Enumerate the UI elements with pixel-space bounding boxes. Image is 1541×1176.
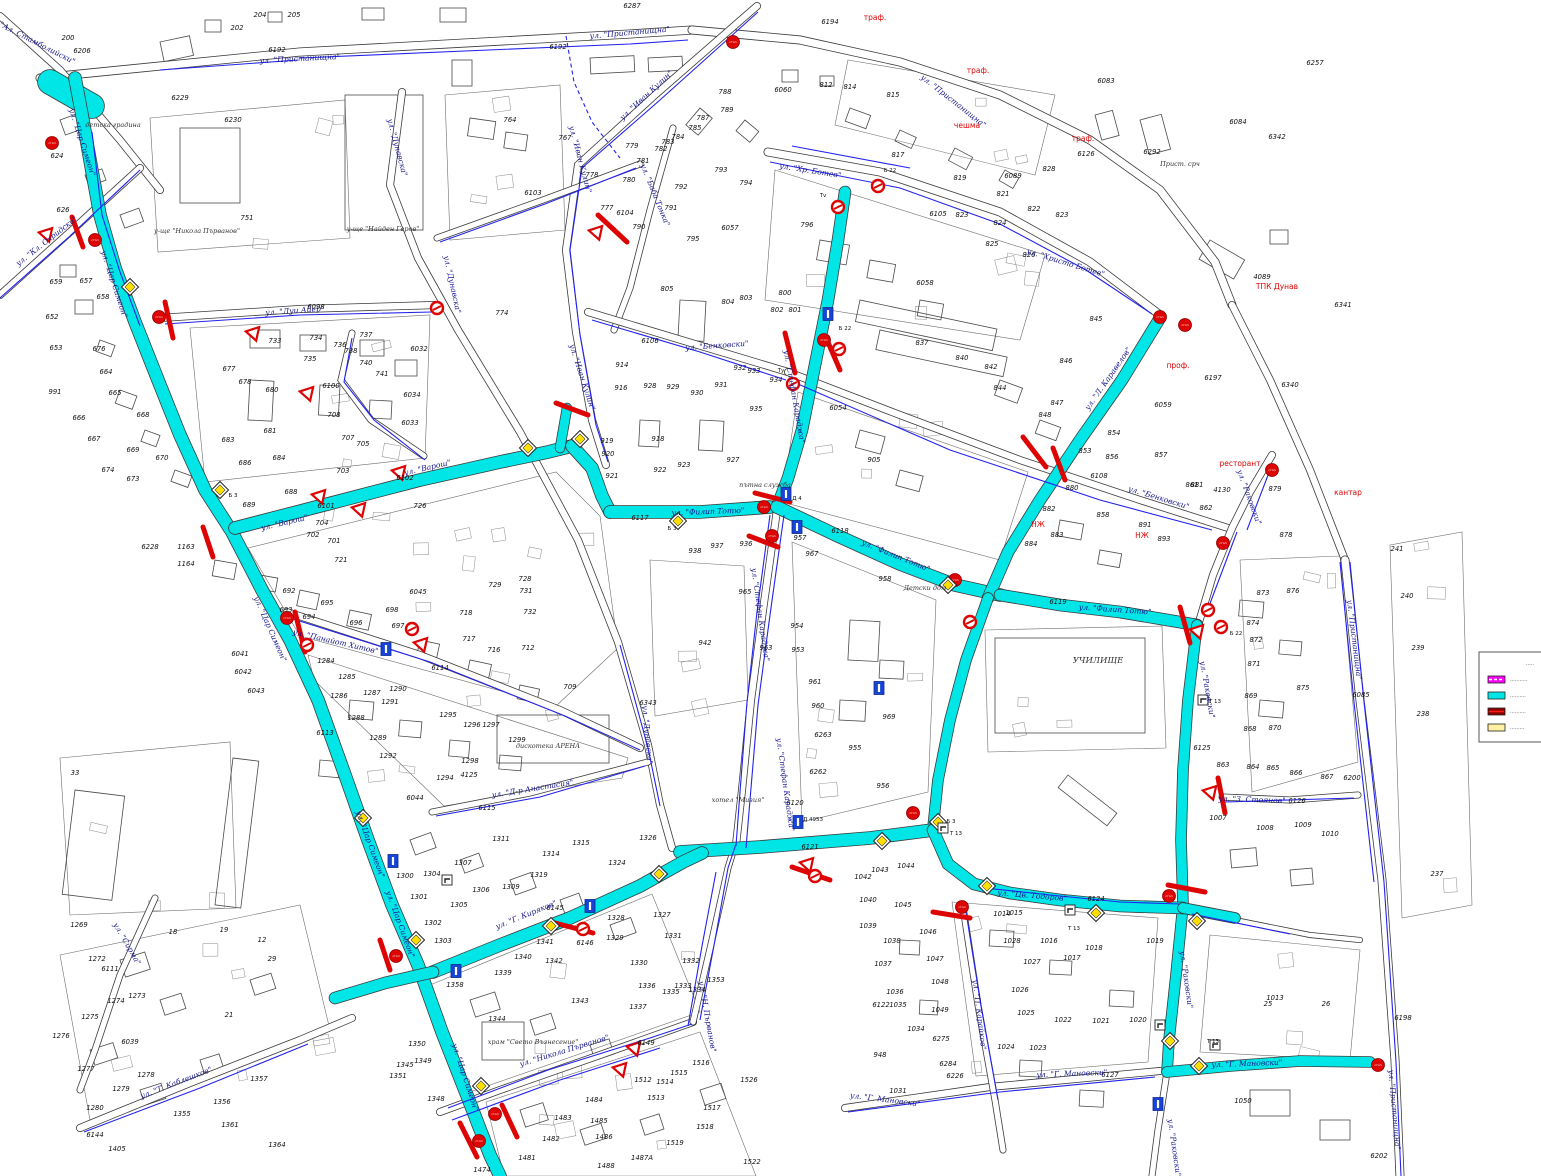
parcel-number: 6104 (616, 209, 633, 217)
sign-code-label: Тv (819, 193, 827, 199)
building-outline (141, 430, 160, 447)
parcel-number: 891 (1139, 521, 1152, 529)
parcel-number: 931 (715, 381, 728, 389)
parcel-number: 1342 (545, 957, 562, 965)
parcel-number: 817 (892, 151, 906, 159)
parcel-number: 738 (345, 347, 359, 355)
parcel-number: 6043 (247, 687, 264, 695)
parcel-number: 1038 (883, 937, 901, 945)
parcel-number: 6103 (524, 189, 541, 197)
parcel-number: 795 (687, 235, 700, 243)
parcel-number: 6114 (431, 664, 448, 672)
parcel-number: 6057 (721, 224, 739, 232)
building-outline (867, 260, 896, 282)
parcel-number: 803 (740, 294, 753, 302)
parcel-number: 6085 (1352, 691, 1369, 699)
parcel-number: 882 (1043, 505, 1056, 513)
building-outline (1109, 990, 1134, 1007)
legend: ········································… (1479, 652, 1541, 742)
parcel-number: 1035 (889, 1001, 906, 1009)
legend-header: ····· (1526, 662, 1534, 668)
building-outline (62, 790, 124, 900)
parcel-clutter (416, 602, 431, 611)
info-sign-glyph (785, 490, 787, 498)
parcel-number: 853 (1079, 447, 1092, 455)
parcel-number: 701 (328, 537, 341, 545)
parcel-number: 1303 (434, 937, 451, 945)
parcel-number: 240 (1401, 592, 1414, 600)
parcel-number: 1336 (638, 982, 656, 990)
parcel-number: 704 (316, 519, 329, 527)
parcel-number: 1361 (221, 1121, 238, 1129)
parcel-number: 657 (80, 277, 94, 285)
parcel-number: 1331 (664, 932, 681, 940)
building-outline (700, 1083, 726, 1105)
parcel-number: 1512 (634, 1076, 651, 1084)
parcel-number: 934 (770, 376, 783, 384)
parcel-number: 689 (243, 501, 256, 509)
parcel-number: 1047 (926, 955, 944, 963)
building-outline (75, 300, 93, 314)
stop-sign-text: стоп (1165, 894, 1172, 898)
info-sign-glyph (827, 310, 829, 318)
parcel-number: 1008 (1256, 824, 1274, 832)
parcel-number: 200 (62, 34, 75, 42)
parcel-number: 686 (239, 459, 253, 467)
parcel-number: 670 (156, 454, 169, 462)
building-outline (467, 118, 495, 139)
parcel-clutter (313, 1037, 335, 1055)
parcel-number: 923 (678, 461, 691, 469)
parcel-number: 1020 (1129, 1016, 1146, 1024)
parcel-clutter (1024, 271, 1040, 286)
parcel-number: 6106 (641, 337, 659, 345)
sign-code-label: Б 22 (884, 168, 897, 174)
parcel-clutter (818, 708, 835, 723)
parcel-number: 6083 (1097, 77, 1114, 85)
parcel-clutter (467, 695, 481, 707)
yield-sign-icon (589, 226, 606, 242)
parcel-number: 854 (1108, 429, 1121, 437)
parcel-number: 930 (691, 389, 704, 397)
parcel-clutter (111, 1055, 133, 1071)
parcel-number: 6033 (401, 419, 418, 427)
parcel-number: 880 (1066, 484, 1079, 492)
sign-code-label: Б 3 (228, 493, 238, 499)
building-outline (1279, 640, 1302, 656)
parcel-clutter (1443, 878, 1457, 893)
parcel-number: 676 (93, 345, 107, 353)
map-svg[interactable]: стопстопстопстопстопстопстопстопстопстоп… (0, 0, 1541, 1176)
parcel-number: 969 (883, 713, 896, 721)
parcel-number: 942 (699, 639, 712, 647)
stop-sign-text: стоп (958, 905, 965, 909)
building-outline (736, 120, 759, 142)
parcel-number: 6229 (171, 94, 188, 102)
area-label: хотел "Мизия" (712, 796, 765, 804)
parcel-number: 1016 (1040, 937, 1058, 945)
parcel-number: 1311 (492, 835, 509, 843)
parcel-number: 905 (868, 456, 881, 464)
parcel-number: 6146 (576, 939, 594, 947)
yield-sign-icon (352, 503, 369, 519)
parcel-number: 626 (57, 206, 71, 214)
parcel-number: 1021 (1092, 1017, 1109, 1025)
red-poi-label: траф. (967, 66, 990, 75)
traffic-signs-layer: стопстопстопстопстопстопстопстопстопстоп… (39, 36, 1385, 1158)
parcel-number: 1017 (1063, 954, 1081, 962)
parcel-number: 1010 (1321, 830, 1338, 838)
parcel-number: 873 (1257, 589, 1270, 597)
parcel-number: 1345 (396, 1061, 413, 1069)
parcel-number: 204 (254, 11, 267, 19)
area-label: Детски дом (903, 584, 947, 592)
parcel-number: 840 (956, 354, 969, 362)
parcel-clutter (332, 393, 350, 403)
parcel-clutter (971, 1061, 982, 1073)
stop-sign-text: стоп (475, 1139, 482, 1143)
parcel-number: 883 (1051, 531, 1064, 539)
parcel-clutter (491, 528, 506, 543)
parcel-number: 822 (1028, 205, 1041, 213)
parcel-number: 6149 (637, 1039, 654, 1047)
parcel-number: 1040 (859, 896, 876, 904)
parcel-number: 932 (734, 364, 747, 372)
parcel-number: 785 (689, 124, 702, 132)
parcel-number: 25 (1264, 1000, 1273, 1008)
block-outline (1390, 532, 1472, 918)
parcel-number: 6042 (234, 668, 251, 676)
parcel-number: 241 (1391, 545, 1404, 553)
building-outline (160, 993, 186, 1015)
parcel-number: 868 (1244, 725, 1258, 733)
parcel-number: 866 (1290, 769, 1304, 777)
parcel-number: 1278 (137, 1071, 155, 1079)
building-outline (855, 430, 885, 454)
parcel-number: 918 (652, 435, 666, 443)
parcel-number: 823 (1056, 211, 1069, 219)
area-label: у-ще "Найден Геров" (346, 225, 419, 233)
parcel-clutter (1012, 722, 1026, 737)
parcel-number: 929 (667, 383, 680, 391)
parcel-number: 1039 (859, 922, 876, 930)
parcel-number: 779 (626, 142, 639, 150)
parcel-number: 6058 (916, 279, 934, 287)
building-outline (470, 992, 500, 1017)
parcel-number: 1291 (381, 698, 398, 706)
parcel-number: 6101 (317, 502, 334, 510)
red-poi-label: траф. (864, 13, 887, 22)
area-label: УЧИЛИЩЕ (1073, 656, 1124, 666)
legend-item-label: ·········· (1510, 694, 1526, 700)
parcel-number: 1305 (450, 901, 467, 909)
stop-sign-text: стоп (283, 616, 290, 620)
parcel-number: 6044 (406, 794, 423, 802)
parcel-number: 6121 (801, 843, 818, 851)
parcel-clutter (462, 556, 475, 572)
parcel-number: 718 (460, 609, 474, 617)
parcel-number: 741 (376, 370, 389, 378)
parcel-number: 780 (623, 176, 636, 184)
parcel-number: 936 (740, 540, 754, 548)
parcel-number: 12 (258, 936, 267, 944)
building-outline (1058, 775, 1117, 826)
parcel-number: 678 (239, 378, 253, 386)
cyan-street (235, 446, 572, 528)
parcel-clutter (815, 445, 833, 455)
parcel-number: 789 (721, 106, 734, 114)
parcel-number: 921 (606, 472, 619, 480)
parcel-number: 1031 (889, 1087, 906, 1095)
parcel-number: 846 (1060, 357, 1074, 365)
parcel-number: 624 (51, 152, 64, 160)
parcel-number: 1018 (1085, 944, 1103, 952)
parcel-number: 697 (392, 622, 406, 630)
parcel-clutter (399, 765, 415, 774)
parcel-number: 6100 (322, 382, 339, 390)
sign-code-label: Ту (777, 368, 785, 374)
parcel-clutter (995, 256, 1018, 276)
info-sign-glyph (589, 902, 591, 910)
parcel-number: 6105 (929, 210, 946, 218)
parcel-number: 709 (564, 683, 577, 691)
stop-sign-text: стоп (909, 811, 916, 815)
area-label: детска градина (85, 121, 141, 129)
parcel-number: 1343 (571, 997, 588, 1005)
direction-sign-icon (1155, 1020, 1165, 1030)
parcel-number: 6124 (1087, 895, 1104, 903)
parcel-number: 1329 (606, 934, 623, 942)
parcel-number: 1284 (317, 657, 334, 665)
stop-sign-text: стоп (729, 40, 736, 44)
parcel-number: 6284 (939, 1060, 956, 1068)
parcel-number: 674 (102, 466, 115, 474)
parcel-clutter (1327, 573, 1336, 588)
info-sign-glyph (455, 967, 457, 975)
parcel-clutter (1006, 924, 1027, 934)
yield-sign-icon (246, 327, 263, 343)
parcel-number: 6126 (1288, 797, 1306, 805)
parcel-number: 1486 (595, 1133, 613, 1141)
parcel-number: 792 (675, 183, 688, 191)
parcel-number: 728 (519, 575, 533, 583)
parcel-number: 6041 (231, 650, 248, 658)
direction-sign-icon (442, 875, 452, 885)
parcel-number: 1487А (631, 1154, 653, 1162)
parcel-number: 1526 (740, 1076, 758, 1084)
parcel-number: 737 (360, 331, 374, 339)
stop-sign-text: стоп (1268, 468, 1275, 472)
parcel-number: 812 (820, 81, 833, 89)
legend-swatch-cyan-line (1488, 692, 1505, 699)
parcel-number: 732 (524, 608, 537, 616)
closure-bar-icon (502, 1105, 517, 1137)
parcel-number: 680 (266, 386, 279, 394)
parcel-number: 26 (1322, 1000, 1331, 1008)
parcel-number: 800 (779, 289, 792, 297)
area-label: храм "Свето Възнесение" (488, 1038, 578, 1046)
parcel-number: 804 (722, 298, 735, 306)
stop-sign-text: стоп (48, 141, 55, 145)
parcel-number: 1522 (743, 1158, 760, 1166)
parcel-number: 721 (335, 556, 348, 564)
stop-sign-text: стоп (760, 505, 767, 509)
parcel-number: 814 (844, 83, 857, 91)
direction-sign-icon (1065, 905, 1075, 915)
parcel-clutter (657, 1140, 667, 1149)
road-surface (788, 372, 1228, 528)
parcel-number: 1304 (423, 870, 440, 878)
parcel-number: 796 (801, 221, 815, 229)
closure-bar-icon (203, 527, 213, 557)
building-outline (452, 60, 472, 86)
building-outline (1290, 868, 1313, 886)
parcel-number: 751 (241, 214, 254, 222)
sign-code-label: Б 22 (1230, 631, 1243, 637)
parcel-number: 1296 (463, 721, 481, 729)
parcel-number: 669 (127, 446, 140, 454)
parcel-number: 1044 (897, 862, 914, 870)
area-label: пътна служба (739, 481, 791, 489)
parcel-clutter (492, 96, 511, 112)
building-outline (678, 300, 706, 341)
parcel-clutter (862, 469, 872, 478)
road-surface (80, 1018, 352, 1128)
parcel-clutter (253, 238, 269, 249)
parcel-number: 870 (1269, 724, 1282, 732)
building-outline (590, 56, 635, 74)
red-poi-label: НЖ (1031, 520, 1045, 529)
parcel-number: 6054 (829, 404, 846, 412)
parcel-number: 683 (222, 436, 235, 444)
parcel-number: 874 (1247, 619, 1260, 627)
parcel-number: 1314 (542, 850, 559, 858)
parcel-number: 823 (956, 211, 969, 219)
parcel-number: 1339 (494, 969, 511, 977)
building-outline (845, 108, 870, 129)
parcel-number: 927 (727, 456, 741, 464)
parcel-number: 6192 (549, 43, 566, 51)
area-label: у-ще "Никола Първанов" (153, 227, 240, 235)
closure-bar-icon (380, 940, 390, 970)
parcel-number: 703 (337, 467, 350, 475)
parcel-number: 922 (654, 466, 667, 474)
parcel-number: 6119 (1049, 598, 1066, 606)
parcel-number: 1023 (1029, 1044, 1046, 1052)
parcel-number: 1280 (86, 1104, 103, 1112)
building-outline (1250, 1090, 1290, 1116)
parcel-number: 6287 (623, 2, 641, 10)
parcel-number: 819 (954, 174, 967, 182)
parcel-number: 788 (719, 88, 733, 96)
parcel-number: 916 (615, 384, 629, 392)
parcel-number: 1274 (107, 997, 124, 1005)
parcel-number: 1517 (703, 1104, 721, 1112)
parcel-number: 842 (985, 363, 998, 371)
building-outline (848, 620, 880, 662)
building-outline (1035, 420, 1060, 441)
building-outline (362, 8, 384, 20)
parcel-number: 782 (655, 145, 668, 153)
parcel-number: 1514 (656, 1078, 673, 1086)
parcel-number: 1049 (931, 1006, 948, 1014)
parcel-number: 1037 (874, 960, 892, 968)
parcel-number: 960 (812, 702, 825, 710)
parcel-clutter (806, 275, 824, 287)
parcel-number: 1028 (1003, 937, 1021, 945)
parcel-number: 787 (697, 114, 711, 122)
parcel-number: 1481 (518, 1154, 535, 1162)
legend-item-label: ·········· (1510, 710, 1526, 716)
yield-sign-icon (300, 387, 317, 403)
parcel-number: 29 (268, 955, 277, 963)
parcel-number: 18 (169, 928, 178, 936)
parcel-number: 729 (489, 581, 502, 589)
parcel-number: 6341 (1334, 301, 1351, 309)
parcel-number: 731 (520, 587, 533, 595)
building-outline (879, 660, 904, 679)
parcel-clutter (368, 770, 385, 783)
sign-code-label: Т 13 (949, 831, 963, 837)
parcel-number: 726 (414, 502, 428, 510)
parcel-number: 1324 (608, 859, 625, 867)
parcel-clutter (528, 547, 542, 559)
parcel-number: 239 (1412, 644, 1425, 652)
parcel-number: 957 (794, 534, 808, 542)
parcel-number: 667 (88, 435, 102, 443)
block-outline (650, 560, 748, 716)
street-name-label: ул. "Баба Тонка" (638, 162, 672, 228)
parcel-number: 1337 (629, 1003, 647, 1011)
building-outline (899, 940, 920, 955)
parcel-number: 205 (288, 11, 301, 19)
parcel-number: 6197 (1204, 374, 1222, 382)
parcel-number: 695 (321, 599, 334, 607)
parcel-number: 1276 (52, 1032, 70, 1040)
building-outline (896, 470, 923, 492)
parcel-number: 6144 (86, 1131, 103, 1139)
parcel-number: 6275 (932, 1035, 949, 1043)
parcel-number: 845 (1090, 315, 1103, 323)
parcel-number: 6257 (1306, 59, 1324, 67)
building-outline (530, 1013, 556, 1035)
parcel-number: 6089 (1004, 172, 1021, 180)
parcel-number: 1350 (408, 1040, 425, 1048)
cadastral-map-canvas[interactable]: стопстопстопстопстопстопстопстопстопстоп… (0, 0, 1541, 1176)
parcel-number: 733 (269, 337, 282, 345)
building-outline (1098, 550, 1122, 568)
parcel-number: 705 (357, 440, 370, 448)
parcel-number: 698 (386, 606, 400, 614)
parcel-clutter (371, 340, 391, 352)
parcel-number: 6084 (1229, 118, 1246, 126)
legend-item-label: ········· (1510, 726, 1525, 732)
parcel-number: 1309 (502, 883, 519, 891)
parcel-number: 801 (789, 306, 802, 314)
parcel-number: 1315 (572, 839, 589, 847)
parcel-number: 1483 (554, 1114, 571, 1122)
parcel-number: 1048 (931, 978, 949, 986)
building-outline (215, 758, 259, 908)
parcel-number: 6113 (316, 729, 333, 737)
parcel-clutter (806, 748, 816, 758)
parcel-number: 1275 (81, 1013, 98, 1021)
street-name-label: ул. "П. Карайков" (971, 978, 989, 1050)
building-outline (698, 420, 724, 451)
parcel-number: 6192 (268, 46, 285, 54)
parcel-number: 948 (874, 1051, 888, 1059)
parcel-number: 6230 (224, 116, 241, 124)
